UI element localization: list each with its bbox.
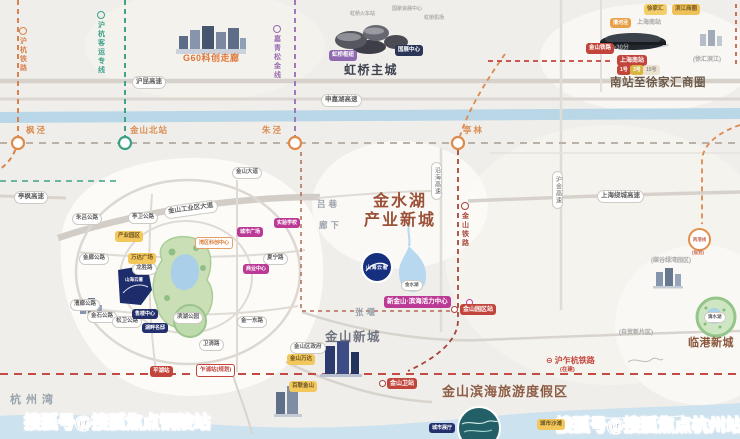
rail-label-huhang-text: 沪杭铁路	[20, 37, 27, 73]
project-site-label: 山海云著	[117, 277, 151, 283]
badge-vitality-center: 新金山·滨海活力中心	[384, 296, 451, 308]
region-label-hangzhou-bay: 杭州湾	[10, 394, 58, 407]
badge-pinghu-station: 平湖站	[150, 366, 173, 377]
region-label-g60-corridor: G60科创走廊	[183, 53, 240, 64]
badge-zhapu-station: 乍浦站(规划)	[196, 364, 235, 377]
road-pill-hukun-expwy: 沪昆高速	[132, 76, 166, 89]
label-lianggang-planned: (规划)	[692, 251, 704, 256]
road-label-hujin-expwy-text: 沪金高速	[555, 176, 561, 204]
poi-pill-dishui-lake: 滴水湖	[704, 312, 726, 323]
project-logo-label: 山海云著	[362, 264, 392, 271]
rail-ring-icon	[273, 25, 281, 33]
badge-riverside-cbd: 滨江商圈	[672, 4, 700, 15]
station-label-jinshanbei: 金山北站	[130, 126, 168, 135]
road-pill-xianing: 夏宁路	[263, 253, 288, 265]
badge-jinshanwei-station: 金山卫站	[387, 378, 417, 389]
badge-xujiahui: 徐家汇	[644, 4, 667, 15]
station-label-zhujing: 朱泾	[262, 126, 283, 135]
badge-hongqiao-hub: 虹桥枢纽	[329, 50, 357, 61]
label-south-station-small: 上海南站	[637, 20, 661, 26]
badge-metro-line-1: 1号	[617, 65, 631, 75]
rail-label-jiaqingsongjin: 嘉青松金线	[273, 25, 281, 80]
road-label-hujin-expwy: 沪金高速	[552, 171, 563, 209]
rail-label-huhang-hsr: 沪杭客运专线	[97, 11, 105, 75]
watermark-sohu-hangzhou: 搜狐号@搜狐焦点杭州站	[556, 411, 740, 436]
badge-wanda-inset: 万达广场	[128, 253, 156, 264]
road-pill-zhulv: 朱吕公路	[72, 213, 102, 225]
label-xuhui-riverside: (徐汇滨江)	[693, 57, 721, 63]
label-ftz-area: (自贸新片区)	[619, 330, 653, 336]
road-pill-weiqing: 卫清路	[199, 339, 224, 351]
road-pill-caolang: 漕廊公路	[70, 299, 100, 311]
station-dot-icon	[451, 306, 458, 313]
badge-city-hall: 城市展厅	[429, 423, 455, 433]
badge-metro-line-3: 3号	[630, 65, 644, 75]
road-pill-longsheng: 龙胜路	[132, 263, 157, 275]
town-label-zhangyan: 张堰	[355, 308, 378, 317]
rail-label-huzhahang-note: (在建)	[560, 365, 575, 373]
road-label-yanhai-expwy: 沿海高速	[431, 162, 442, 200]
lianggang-line-label: 两港线	[693, 237, 707, 243]
region-label-jinshan-new-city: 金山新城	[325, 330, 381, 345]
station-label-tinglin: 亭林	[463, 126, 484, 135]
region-label-south-station-cbd: 南站至徐家汇商圈	[610, 77, 706, 91]
road-pill-shenjiahu-expwy: 申嘉湖高速	[321, 94, 362, 107]
station-dot-icon	[379, 380, 386, 387]
badge-city-beach: 城市沙滩	[537, 419, 565, 430]
watermark-sohu-tongling: 搜狐号@搜狐焦点铜陵站	[24, 408, 211, 433]
badge-residence: 湖畔名邸	[142, 323, 168, 333]
label-hongqiao-railway: 虹桥火车站	[350, 12, 375, 17]
rail-label-jiaqingsongjin-text: 嘉青松金线	[274, 35, 281, 80]
badge-caohejing: 漕河泾	[610, 18, 631, 28]
road-pill-jinlang: 金廊公路	[79, 253, 109, 265]
train-line-icon: ⊖	[546, 357, 553, 365]
badge-sales-center: 售楼中心	[132, 309, 158, 319]
badge-yuanqu-station: 金山园区站	[460, 304, 496, 315]
map-canvas: G60科创走廊 虹桥主城 南站至徐家汇商圈 金水湖 产业新城 金山新城 临港新城…	[0, 0, 740, 439]
label-tangu-park: (碳谷绿湾园区)	[651, 258, 691, 264]
badge-jinshan-railway: 金山铁路	[586, 43, 614, 54]
label-overlay: G60科创走廊 虹桥主城 南站至徐家汇商圈 金水湖 产业新城 金山新城 临港新城…	[0, 0, 740, 439]
region-label-binhai-resort: 金山滨海旅游度假区	[442, 384, 568, 399]
town-label-luxiang: 吕巷	[317, 200, 340, 209]
road-pill-jinyi-east: 金一东路	[237, 316, 267, 328]
road-pill-tingfeng-expwy: 亭枫高速	[14, 191, 48, 204]
poi-pill-lakeside-park: 滨湖公园	[173, 312, 203, 324]
rail-label-huhang: 沪杭铁路	[19, 27, 27, 73]
road-pill-industry-avenue: 金山工业区大道	[163, 199, 218, 219]
poi-pill-district-gov: 金山区政府	[290, 342, 326, 354]
road-pill-tingwei: 亭卫公路	[128, 212, 158, 224]
region-label-hongqiao: 虹桥主城	[344, 63, 398, 77]
badge-city-plaza: 城市广场	[237, 227, 263, 237]
rail-ring-icon	[97, 11, 105, 19]
badge-necc-pill: 国展中心	[395, 45, 423, 56]
rail-ring-icon	[19, 27, 27, 35]
region-label-lingang-new-city: 临港新城	[688, 337, 734, 350]
rail-ring-icon	[461, 202, 469, 210]
badge-school: 实验学校	[274, 218, 300, 228]
road-label-yanhai-expwy-text: 沿海高速	[434, 167, 440, 195]
rail-label-jinshan: 金山铁路	[461, 202, 469, 248]
jinshuihu-line2: 产业新城	[352, 212, 448, 231]
rail-label-huhang-hsr-text: 沪杭客运专线	[98, 21, 105, 75]
badge-jinshan-wanda: 金山万达	[287, 354, 315, 365]
badge-bailian: 百联金山	[289, 381, 317, 392]
station-label-fengjing: 枫泾	[26, 126, 47, 135]
label-30min: ≈30分	[613, 45, 629, 51]
town-label-langxia: 廊下	[319, 221, 342, 230]
rail-label-jinshan-text: 金山铁路	[462, 212, 469, 248]
badge-industry-park: 产业园区	[115, 231, 143, 242]
label-hongqiao-airport: 虹桥机场	[424, 16, 444, 21]
label-necc: 国家会展中心	[392, 7, 422, 12]
road-pill-jinshan-avenue: 金山大道	[232, 167, 262, 179]
poi-pill-jinshui-lake: 金水湖	[401, 280, 423, 291]
badge-commerce-center: 商业中心	[243, 264, 269, 274]
road-pill-raocheng-expwy: 上海绕城高速	[597, 190, 644, 203]
badge-metro-line-15: 15号	[643, 65, 660, 75]
badge-bay-tech-center: 湾区科创中心	[195, 237, 233, 249]
lianggang-line-ring: 两港线	[688, 228, 711, 251]
